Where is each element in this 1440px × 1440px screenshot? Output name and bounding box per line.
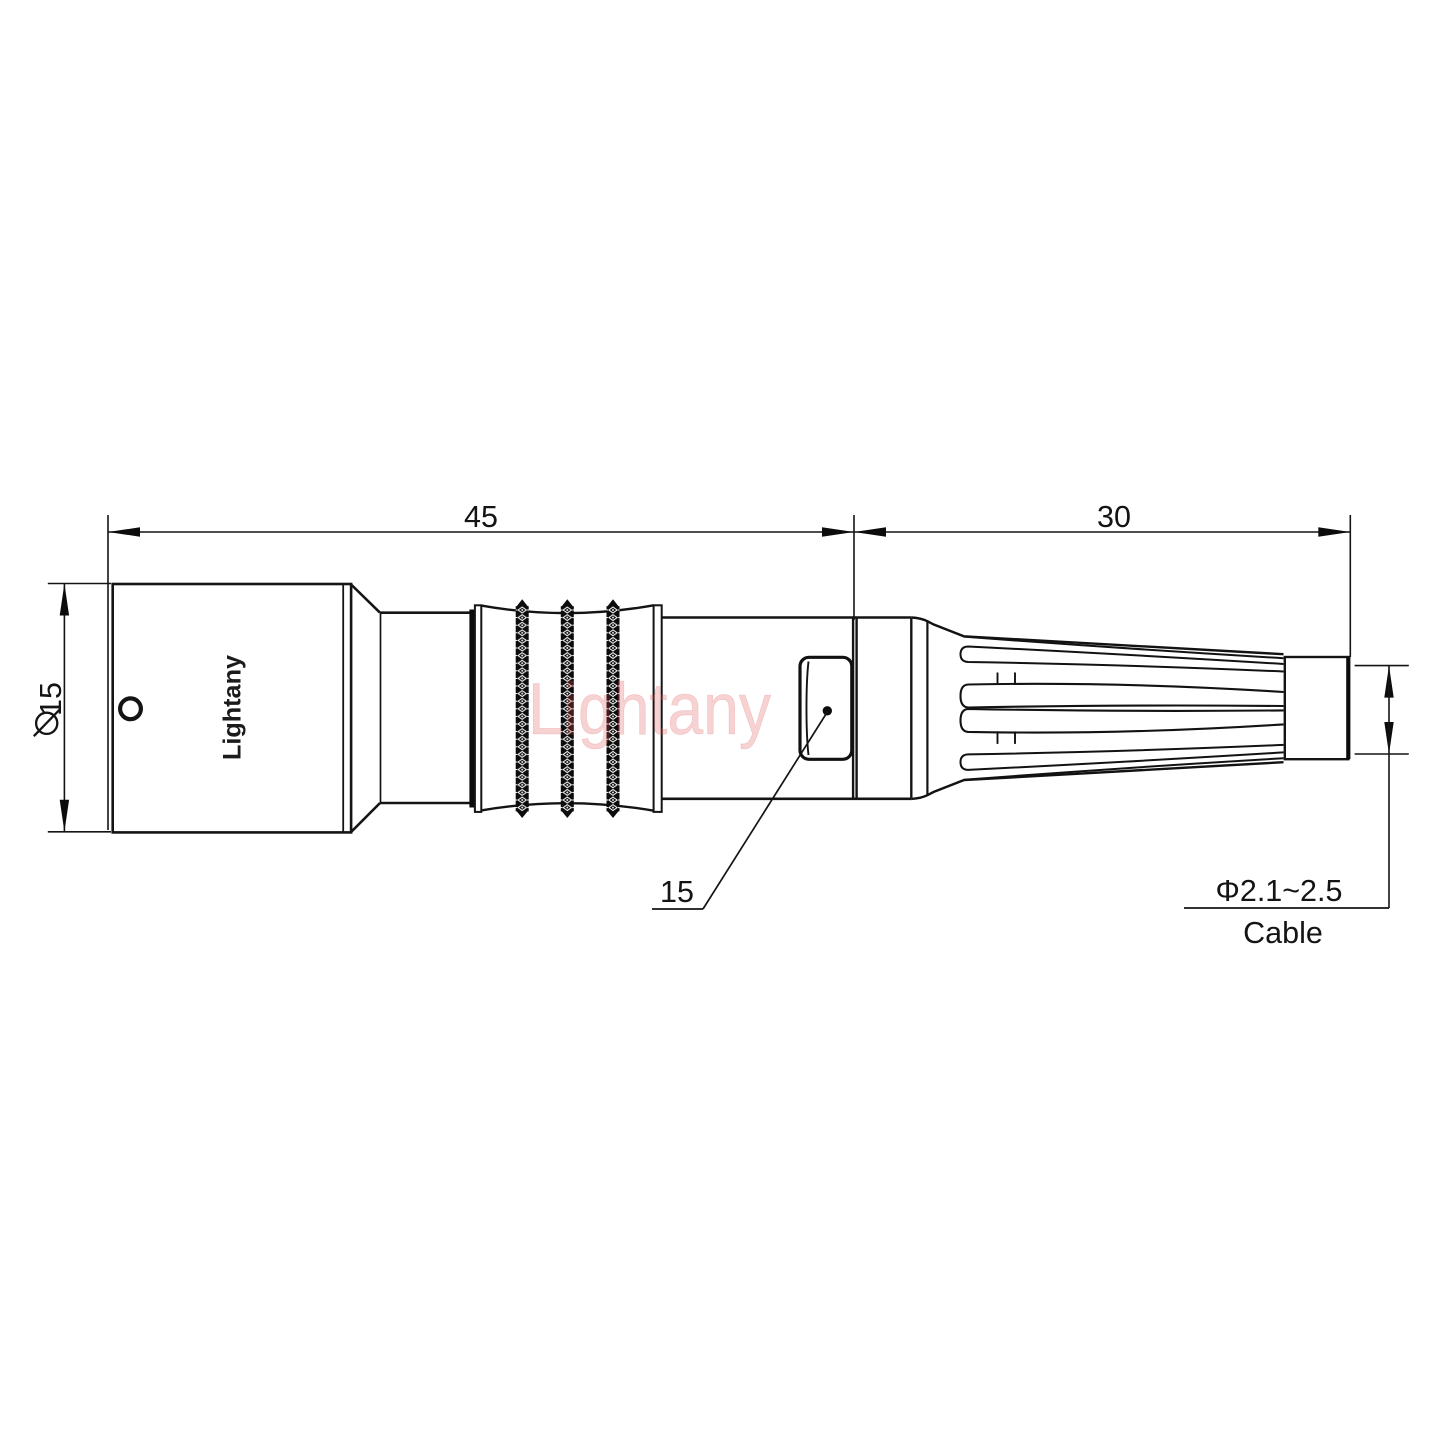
svg-text:45: 45	[464, 500, 498, 534]
svg-text:Lightany: Lightany	[219, 655, 247, 760]
svg-text:Φ2.1~2.5: Φ2.1~2.5	[1216, 874, 1343, 908]
svg-text:15: 15	[660, 875, 694, 909]
svg-text:Cable: Cable	[1243, 916, 1323, 950]
svg-text:Lightany: Lightany	[528, 669, 771, 750]
svg-text:30: 30	[1097, 500, 1131, 534]
svg-text:15: 15	[34, 682, 68, 716]
